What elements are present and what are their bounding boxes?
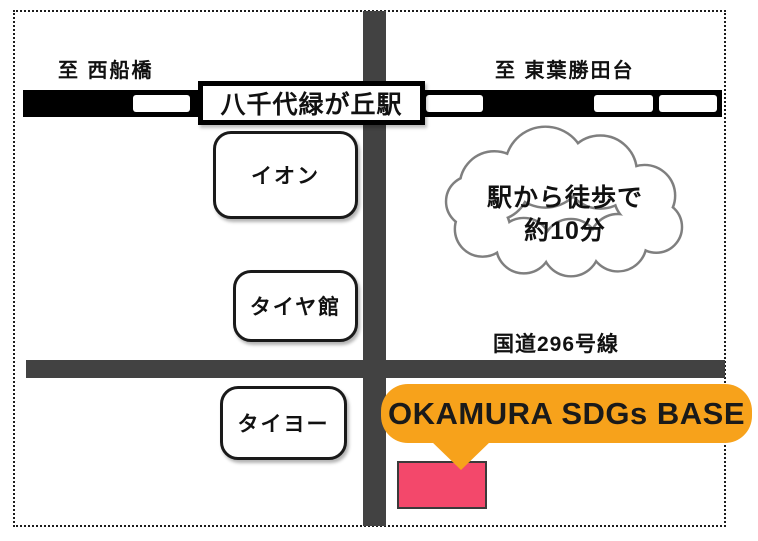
route-296-label: 国道296号線 bbox=[493, 328, 619, 358]
direction-label-west: 至 西船橋 bbox=[58, 54, 154, 83]
walk-time-text: 駅から徒歩で 約10分 bbox=[443, 136, 687, 293]
building-label: タイヨー bbox=[238, 408, 330, 438]
station-box: 八千代緑が丘駅 bbox=[198, 81, 425, 125]
access-map: 至 西船橋 至 東葉勝田台 八千代緑が丘駅 イオン タイヤ館 タイヨー bbox=[0, 0, 758, 541]
station-label: 八千代緑が丘駅 bbox=[220, 85, 402, 121]
building-taiyakan: タイヤ館 bbox=[233, 270, 358, 342]
building-taiyo: タイヨー bbox=[220, 386, 347, 460]
building-label: イオン bbox=[251, 160, 320, 190]
walk-time-line2: 約10分 bbox=[524, 215, 606, 248]
walk-time-cloud-callout: 駅から徒歩で 約10分 bbox=[443, 123, 687, 280]
building-aeon: イオン bbox=[213, 131, 358, 219]
building-label: タイヤ館 bbox=[250, 291, 341, 321]
destination-callout: OKAMURA SDGs BASE bbox=[381, 384, 752, 443]
railway-tie bbox=[659, 95, 717, 112]
walk-time-line1: 駅から徒歩で bbox=[487, 182, 643, 215]
direction-label-east: 至 東葉勝田台 bbox=[495, 54, 635, 83]
railway-tie bbox=[594, 95, 653, 112]
destination-callout-tail-icon bbox=[430, 440, 492, 470]
railway-tie bbox=[133, 95, 190, 112]
road-horizontal-route296 bbox=[26, 360, 725, 378]
railway-tie bbox=[426, 95, 483, 112]
destination-label: OKAMURA SDGs BASE bbox=[388, 396, 745, 432]
